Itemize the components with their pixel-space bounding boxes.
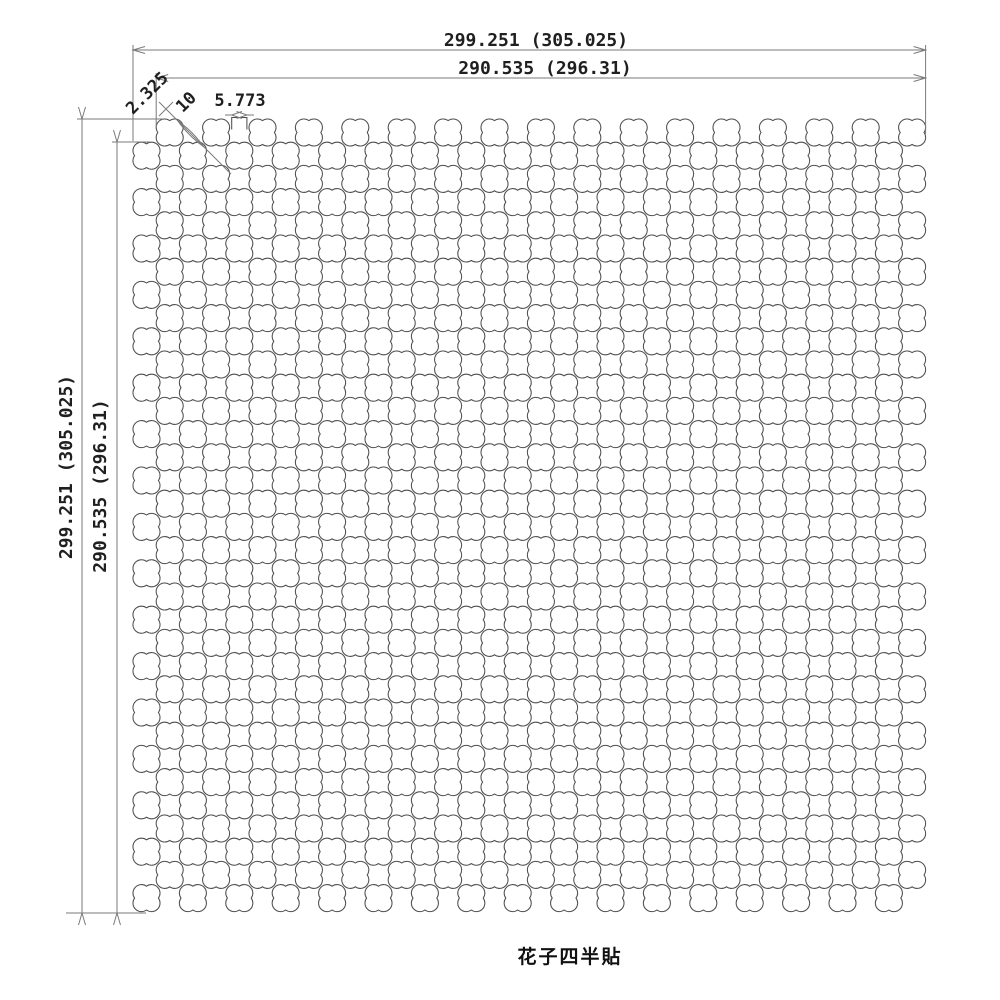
- quatrefoil-hole: [342, 305, 369, 332]
- quatrefoil-hole: [527, 537, 554, 564]
- quatrefoil-hole: [342, 815, 369, 842]
- quatrefoil-hole: [272, 745, 299, 772]
- quatrefoil-hole: [203, 490, 230, 517]
- quatrefoil-hole: [551, 467, 578, 494]
- quatrefoil-hole: [319, 374, 346, 401]
- quatrefoil-hole: [388, 676, 415, 703]
- quatrefoil-hole: [388, 769, 415, 796]
- quatrefoil-hole: [226, 421, 253, 448]
- quatrefoil-hole: [411, 142, 438, 169]
- quatrefoil-hole: [179, 838, 206, 865]
- quatrefoil-hole: [574, 676, 601, 703]
- quatrefoil-hole: [388, 444, 415, 471]
- dim-top-outer-label: 299.251 (305.025): [444, 30, 628, 51]
- quatrefoil-hole: [574, 769, 601, 796]
- quatrefoil-hole: [527, 165, 554, 192]
- quatrefoil-hole: [759, 815, 786, 842]
- quatrefoil-hole: [852, 305, 879, 332]
- quatrefoil-hole: [458, 560, 485, 587]
- quatrefoil-hole: [899, 351, 926, 378]
- quatrefoil-hole: [226, 374, 253, 401]
- quatrefoil-hole: [435, 305, 462, 332]
- quatrefoil-hole: [736, 560, 763, 587]
- drawing-title: 花子四半貼: [517, 945, 622, 968]
- quatrefoil-hole: [713, 722, 740, 749]
- quatrefoil-hole: [829, 560, 856, 587]
- quatrefoil-hole: [690, 235, 717, 262]
- quatrefoil-hole: [249, 861, 276, 888]
- dim-left-inner-line: [114, 130, 121, 925]
- quatrefoil-hole: [713, 537, 740, 564]
- quatrefoil-hole: [690, 328, 717, 355]
- quatrefoil-hole: [597, 560, 624, 587]
- quatrefoil-hole: [179, 374, 206, 401]
- quatrefoil-hole: [458, 142, 485, 169]
- quatrefoil-hole: [388, 583, 415, 610]
- quatrefoil-hole: [899, 258, 926, 285]
- quatrefoil-hole: [875, 699, 902, 726]
- quatrefoil-hole: [597, 745, 624, 772]
- quatrefoil-hole: [179, 606, 206, 633]
- quatrefoil-hole: [226, 189, 253, 216]
- quatrefoil-hole: [597, 421, 624, 448]
- quatrefoil-hole: [736, 374, 763, 401]
- quatrefoil-hole: [458, 189, 485, 216]
- quatrefoil-hole: [249, 722, 276, 749]
- quatrefoil-hole: [319, 699, 346, 726]
- quatrefoil-hole: [365, 281, 392, 308]
- quatrefoil-hole: [388, 861, 415, 888]
- quatrefoil-hole: [806, 165, 833, 192]
- quatrefoil-hole: [690, 699, 717, 726]
- quatrefoil-hole: [643, 421, 670, 448]
- quatrefoil-hole: [504, 281, 531, 308]
- quatrefoil-hole: [597, 885, 624, 912]
- quatrefoil-hole: [504, 235, 531, 262]
- quatrefoil-hole: [527, 444, 554, 471]
- quatrefoil-hole: [133, 792, 160, 819]
- quatrefoil-hole: [829, 606, 856, 633]
- quatrefoil-hole: [574, 119, 601, 146]
- quatrefoil-hole: [365, 653, 392, 680]
- quatrefoil-hole: [319, 513, 346, 540]
- quatrefoil-hole: [504, 885, 531, 912]
- quatrefoil-hole: [574, 629, 601, 656]
- quatrefoil-hole: [179, 745, 206, 772]
- quatrefoil-hole: [806, 490, 833, 517]
- quatrefoil-hole: [365, 560, 392, 587]
- quatrefoil-hole: [133, 606, 160, 633]
- hole-pattern: [133, 119, 926, 912]
- quatrefoil-hole: [643, 745, 670, 772]
- quatrefoil-hole: [249, 769, 276, 796]
- quatrefoil-hole: [249, 537, 276, 564]
- quatrefoil-hole: [759, 722, 786, 749]
- quatrefoil-hole: [272, 560, 299, 587]
- quatrefoil-hole: [643, 467, 670, 494]
- dim-neck-lines: [225, 112, 254, 119]
- technical-drawing: 299.251 (305.025) 290.535 (296.31) 299.2…: [0, 0, 1000, 1000]
- quatrefoil-hole: [620, 676, 647, 703]
- quatrefoil-hole: [203, 815, 230, 842]
- quatrefoil-hole: [481, 583, 508, 610]
- quatrefoil-hole: [574, 165, 601, 192]
- quatrefoil-hole: [388, 165, 415, 192]
- quatrefoil-hole: [458, 699, 485, 726]
- quatrefoil-hole: [365, 189, 392, 216]
- quatrefoil-hole: [458, 745, 485, 772]
- quatrefoil-hole: [504, 421, 531, 448]
- dim-left-inner-label: 290.535 (296.31): [90, 399, 111, 572]
- quatrefoil-hole: [319, 467, 346, 494]
- quatrefoil-hole: [458, 328, 485, 355]
- quatrefoil-hole: [411, 653, 438, 680]
- quatrefoil-hole: [435, 119, 462, 146]
- quatrefoil-hole: [643, 513, 670, 540]
- quatrefoil-hole: [226, 467, 253, 494]
- quatrefoil-hole: [690, 513, 717, 540]
- quatrefoil-hole: [551, 421, 578, 448]
- quatrefoil-hole: [574, 305, 601, 332]
- quatrefoil-hole: [458, 281, 485, 308]
- quatrefoil-hole: [690, 374, 717, 401]
- quatrefoil-hole: [133, 513, 160, 540]
- quatrefoil-hole: [829, 328, 856, 355]
- quatrefoil-hole: [643, 838, 670, 865]
- quatrefoil-hole: [411, 745, 438, 772]
- quatrefoil-hole: [481, 722, 508, 749]
- quatrefoil-hole: [133, 374, 160, 401]
- quatrefoil-hole: [295, 722, 322, 749]
- quatrefoil-hole: [829, 421, 856, 448]
- quatrefoil-hole: [551, 235, 578, 262]
- quatrefoil-hole: [435, 815, 462, 842]
- quatrefoil-hole: [156, 583, 183, 610]
- quatrefoil-hole: [783, 653, 810, 680]
- quatrefoil-hole: [736, 885, 763, 912]
- quatrefoil-hole: [620, 351, 647, 378]
- quatrefoil-hole: [435, 490, 462, 517]
- quatrefoil-hole: [295, 351, 322, 378]
- quatrefoil-hole: [899, 490, 926, 517]
- quatrefoil-hole: [504, 142, 531, 169]
- quatrefoil-hole: [783, 421, 810, 448]
- quatrefoil-hole: [829, 142, 856, 169]
- quatrefoil-hole: [852, 444, 879, 471]
- quatrefoil-hole: [527, 815, 554, 842]
- quatrefoil-hole: [458, 792, 485, 819]
- quatrefoil-hole: [574, 861, 601, 888]
- quatrefoil-hole: [435, 861, 462, 888]
- quatrefoil-hole: [365, 374, 392, 401]
- quatrefoil-hole: [458, 235, 485, 262]
- quatrefoil-hole: [272, 606, 299, 633]
- quatrefoil-hole: [643, 142, 670, 169]
- quatrefoil-hole: [736, 513, 763, 540]
- quatrefoil-hole: [899, 769, 926, 796]
- quatrefoil-hole: [435, 258, 462, 285]
- quatrefoil-hole: [713, 351, 740, 378]
- quatrefoil-hole: [226, 792, 253, 819]
- quatrefoil-hole: [365, 421, 392, 448]
- quatrefoil-hole: [899, 815, 926, 842]
- quatrefoil-hole: [829, 467, 856, 494]
- quatrefoil-hole: [574, 212, 601, 239]
- quatrefoil-hole: [365, 467, 392, 494]
- quatrefoil-hole: [295, 165, 322, 192]
- quatrefoil-hole: [411, 838, 438, 865]
- quatrefoil-hole: [643, 189, 670, 216]
- quatrefoil-hole: [736, 328, 763, 355]
- quatrefoil-hole: [852, 165, 879, 192]
- quatrefoil-hole: [643, 235, 670, 262]
- quatrefoil-hole: [179, 281, 206, 308]
- quatrefoil-hole: [527, 769, 554, 796]
- quatrefoil-hole: [736, 189, 763, 216]
- quatrefoil-hole: [203, 583, 230, 610]
- quatrefoil-hole: [411, 560, 438, 587]
- quatrefoil-hole: [156, 769, 183, 796]
- quatrefoil-hole: [875, 467, 902, 494]
- quatrefoil-hole: [388, 537, 415, 564]
- quatrefoil-hole: [203, 119, 230, 146]
- quatrefoil-hole: [133, 653, 160, 680]
- quatrefoil-hole: [203, 397, 230, 424]
- quatrefoil-hole: [319, 792, 346, 819]
- quatrefoil-hole: [203, 165, 230, 192]
- quatrefoil-hole: [203, 722, 230, 749]
- quatrefoil-hole: [829, 745, 856, 772]
- quatrefoil-hole: [574, 490, 601, 517]
- quatrefoil-hole: [574, 258, 601, 285]
- quatrefoil-hole: [527, 722, 554, 749]
- quatrefoil-hole: [527, 305, 554, 332]
- quatrefoil-hole: [806, 583, 833, 610]
- quatrefoil-hole: [504, 328, 531, 355]
- quatrefoil-hole: [551, 189, 578, 216]
- quatrefoil-hole: [342, 444, 369, 471]
- quatrefoil-hole: [504, 606, 531, 633]
- quatrefoil-hole: [435, 351, 462, 378]
- quatrefoil-hole: [504, 745, 531, 772]
- quatrefoil-hole: [319, 745, 346, 772]
- quatrefoil-hole: [203, 258, 230, 285]
- quatrefoil-hole: [574, 397, 601, 424]
- quatrefoil-hole: [295, 305, 322, 332]
- quatrefoil-hole: [179, 653, 206, 680]
- quatrefoil-hole: [620, 629, 647, 656]
- quatrefoil-hole: [783, 606, 810, 633]
- quatrefoil-hole: [875, 374, 902, 401]
- quatrefoil-hole: [806, 119, 833, 146]
- quatrefoil-hole: [759, 583, 786, 610]
- quatrefoil-hole: [249, 490, 276, 517]
- quatrefoil-hole: [713, 815, 740, 842]
- quatrefoil-hole: [597, 189, 624, 216]
- quatrefoil-hole: [736, 606, 763, 633]
- quatrefoil-hole: [806, 629, 833, 656]
- quatrefoil-hole: [875, 606, 902, 633]
- quatrefoil-hole: [504, 560, 531, 587]
- quatrefoil-hole: [690, 189, 717, 216]
- quatrefoil-hole: [249, 815, 276, 842]
- quatrefoil-hole: [783, 189, 810, 216]
- quatrefoil-hole: [295, 676, 322, 703]
- quatrefoil-hole: [667, 119, 694, 146]
- quatrefoil-hole: [620, 861, 647, 888]
- quatrefoil-hole: [620, 490, 647, 517]
- quatrefoil-hole: [133, 328, 160, 355]
- quatrefoil-hole: [411, 235, 438, 262]
- quatrefoil-hole: [875, 421, 902, 448]
- quatrefoil-hole: [342, 583, 369, 610]
- quatrefoil-hole: [551, 792, 578, 819]
- quatrefoil-hole: [295, 258, 322, 285]
- quatrefoil-hole: [759, 861, 786, 888]
- quatrefoil-hole: [875, 653, 902, 680]
- quatrefoil-hole: [667, 537, 694, 564]
- quatrefoil-hole: [203, 769, 230, 796]
- quatrefoil-hole: [272, 838, 299, 865]
- quatrefoil-hole: [759, 397, 786, 424]
- quatrefoil-hole: [783, 745, 810, 772]
- quatrefoil-hole: [899, 583, 926, 610]
- quatrefoil-hole: [736, 653, 763, 680]
- quatrefoil-hole: [667, 676, 694, 703]
- quatrefoil-hole: [829, 838, 856, 865]
- quatrefoil-hole: [156, 490, 183, 517]
- quatrefoil-hole: [203, 676, 230, 703]
- quatrefoil-hole: [527, 861, 554, 888]
- quatrefoil-hole: [272, 142, 299, 169]
- quatrefoil-hole: [759, 119, 786, 146]
- quatrefoil-hole: [783, 885, 810, 912]
- quatrefoil-hole: [527, 629, 554, 656]
- quatrefoil-hole: [759, 351, 786, 378]
- quatrefoil-hole: [643, 374, 670, 401]
- quatrefoil-hole: [365, 142, 392, 169]
- quatrefoil-hole: [295, 583, 322, 610]
- quatrefoil-hole: [435, 583, 462, 610]
- quatrefoil-hole: [295, 861, 322, 888]
- quatrefoil-hole: [295, 212, 322, 239]
- quatrefoil-hole: [551, 142, 578, 169]
- quatrefoil-hole: [203, 444, 230, 471]
- quatrefoil-hole: [875, 142, 902, 169]
- quatrefoil-hole: [203, 305, 230, 332]
- quatrefoil-hole: [597, 792, 624, 819]
- quatrefoil-hole: [481, 861, 508, 888]
- quatrefoil-hole: [481, 212, 508, 239]
- quatrefoil-hole: [319, 328, 346, 355]
- quatrefoil-hole: [783, 142, 810, 169]
- quatrefoil-hole: [504, 653, 531, 680]
- quatrefoil-hole: [319, 885, 346, 912]
- quatrefoil-hole: [156, 815, 183, 842]
- quatrefoil-hole: [388, 258, 415, 285]
- quatrefoil-hole: [156, 212, 183, 239]
- quatrefoil-hole: [481, 676, 508, 703]
- quatrefoil-hole: [272, 467, 299, 494]
- quatrefoil-hole: [342, 861, 369, 888]
- quatrefoil-hole: [551, 513, 578, 540]
- quatrefoil-hole: [388, 490, 415, 517]
- quatrefoil-hole: [620, 583, 647, 610]
- quatrefoil-hole: [179, 885, 206, 912]
- quatrefoil-hole: [551, 699, 578, 726]
- quatrefoil-hole: [806, 769, 833, 796]
- quatrefoil-hole: [852, 676, 879, 703]
- quatrefoil-hole: [388, 397, 415, 424]
- quatrefoil-hole: [365, 328, 392, 355]
- quatrefoil-hole: [156, 722, 183, 749]
- quatrefoil-hole: [156, 861, 183, 888]
- quatrefoil-hole: [527, 258, 554, 285]
- quatrefoil-hole: [643, 653, 670, 680]
- quatrefoil-hole: [226, 606, 253, 633]
- quatrefoil-hole: [736, 281, 763, 308]
- quatrefoil-hole: [829, 189, 856, 216]
- quatrefoil-hole: [899, 722, 926, 749]
- quatrefoil-hole: [481, 351, 508, 378]
- quatrefoil-hole: [504, 189, 531, 216]
- quatrefoil-hole: [713, 397, 740, 424]
- quatrefoil-hole: [551, 281, 578, 308]
- quatrefoil-hole: [295, 444, 322, 471]
- quatrefoil-hole: [759, 490, 786, 517]
- quatrefoil-hole: [643, 606, 670, 633]
- quatrefoil-hole: [759, 258, 786, 285]
- quatrefoil-hole: [504, 513, 531, 540]
- quatrefoil-hole: [759, 769, 786, 796]
- quatrefoil-hole: [597, 513, 624, 540]
- quatrefoil-hole: [156, 351, 183, 378]
- quatrefoil-hole: [411, 513, 438, 540]
- quatrefoil-hole: [319, 560, 346, 587]
- quatrefoil-hole: [667, 490, 694, 517]
- quatrefoil-hole: [551, 885, 578, 912]
- quatrefoil-hole: [852, 722, 879, 749]
- quatrefoil-hole: [156, 444, 183, 471]
- quatrefoil-hole: [759, 212, 786, 239]
- quatrefoil-hole: [249, 258, 276, 285]
- quatrefoil-hole: [504, 838, 531, 865]
- quatrefoil-hole: [690, 281, 717, 308]
- quatrefoil-hole: [203, 351, 230, 378]
- quatrefoil-hole: [458, 653, 485, 680]
- quatrefoil-hole: [667, 583, 694, 610]
- quatrefoil-hole: [736, 792, 763, 819]
- quatrefoil-hole: [342, 490, 369, 517]
- quatrefoil-hole: [481, 815, 508, 842]
- quatrefoil-hole: [249, 119, 276, 146]
- quatrefoil-hole: [643, 792, 670, 819]
- quatrefoil-hole: [736, 142, 763, 169]
- quatrefoil-hole: [759, 444, 786, 471]
- quatrefoil-hole: [713, 861, 740, 888]
- quatrefoil-hole: [504, 792, 531, 819]
- quatrefoil-hole: [806, 305, 833, 332]
- quatrefoil-hole: [690, 792, 717, 819]
- quatrefoil-hole: [759, 537, 786, 564]
- quatrefoil-hole: [597, 653, 624, 680]
- quatrefoil-hole: [203, 629, 230, 656]
- quatrefoil-hole: [667, 629, 694, 656]
- quatrefoil-hole: [156, 397, 183, 424]
- quatrefoil-hole: [852, 119, 879, 146]
- quatrefoil-hole: [179, 467, 206, 494]
- quatrefoil-hole: [899, 119, 926, 146]
